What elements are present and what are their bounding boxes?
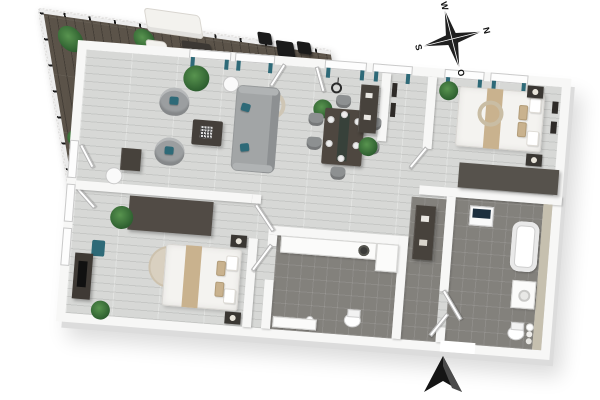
bed-pillow xyxy=(225,255,238,271)
dining-chair xyxy=(306,136,322,150)
potted-plant xyxy=(90,300,110,320)
compass-label-right: N xyxy=(481,26,492,35)
sideboard-dark xyxy=(412,205,436,260)
apartment-unit xyxy=(56,40,572,360)
nightstand-with-lamp xyxy=(224,311,241,324)
compass-label-left: S xyxy=(413,43,424,51)
bed-pillow xyxy=(529,98,542,114)
nightstand-with-lamp xyxy=(230,235,247,248)
tall-cabinet xyxy=(375,243,399,273)
entrance-arrow-icon xyxy=(424,356,462,392)
table-runner xyxy=(336,113,350,162)
bathtub xyxy=(509,221,540,273)
bed-pillow-tan xyxy=(517,122,527,138)
bed-pillow-tan xyxy=(214,282,224,298)
bed-pillow xyxy=(526,131,539,147)
bed-runner xyxy=(181,245,202,308)
entrance-opening xyxy=(440,340,476,354)
dinner-plate xyxy=(325,140,333,148)
bistro-chair-black xyxy=(296,41,312,55)
washer-navy-top xyxy=(469,205,494,227)
wardrobe xyxy=(127,196,213,236)
compass-rose: W O S N xyxy=(405,0,500,78)
teal-pillow xyxy=(240,102,251,112)
dining-chair xyxy=(330,166,346,180)
compass-label-top: W xyxy=(439,1,451,12)
wall-art-frame xyxy=(552,101,559,113)
floor-plan-canvas: W O S N xyxy=(0,0,600,400)
nightstand-with-lamp xyxy=(527,85,544,98)
bed-bedroom2 xyxy=(161,244,242,312)
dining-chair xyxy=(308,112,324,126)
bed-pillow-tan xyxy=(518,105,528,121)
bed-pillow-tan xyxy=(216,261,226,277)
console-table xyxy=(358,84,380,133)
bed-pillow xyxy=(223,288,236,304)
media-console-with-tv xyxy=(72,252,94,299)
dinner-plate xyxy=(327,116,335,124)
dining-chair xyxy=(336,94,352,108)
compass-label-bottom: O xyxy=(455,68,466,77)
bistro-chair-black xyxy=(257,31,273,45)
coffee-table-dark xyxy=(191,119,223,146)
teal-pillow xyxy=(240,143,250,152)
tv-icon xyxy=(77,261,88,288)
sofa-gray xyxy=(230,85,281,174)
nightstand-with-lamp xyxy=(526,154,543,167)
vanity-with-sink xyxy=(510,280,536,310)
teal-pillow xyxy=(169,96,179,105)
wall-art-frame xyxy=(550,121,557,133)
sink-icon xyxy=(518,289,531,302)
teal-pillow xyxy=(164,146,174,155)
tv-shelf xyxy=(120,148,142,172)
